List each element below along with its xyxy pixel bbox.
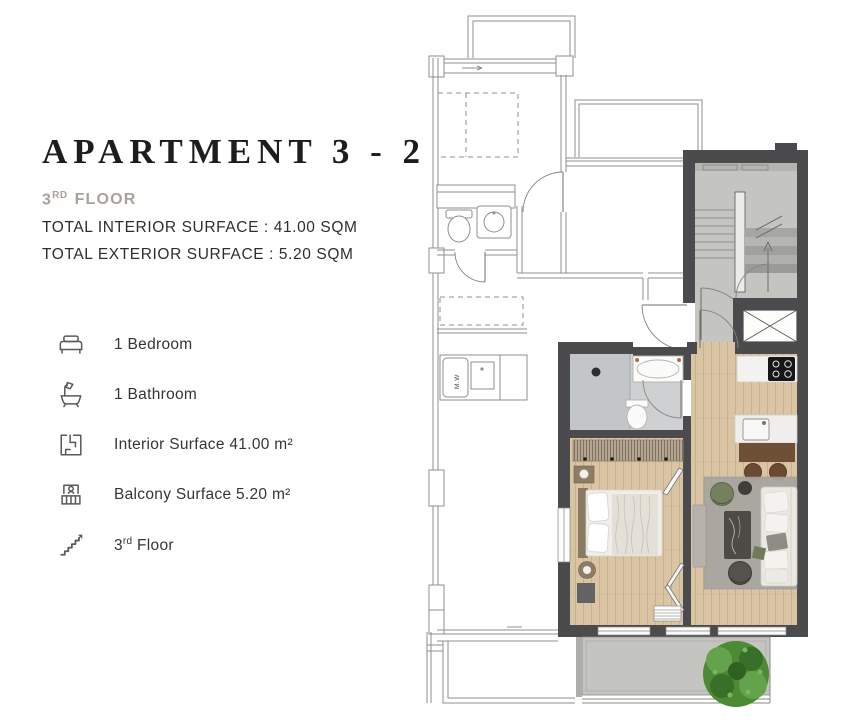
washer-counter: M.W [440,355,527,400]
feature-floor: 3rd Floor [54,530,442,560]
dresser [577,583,595,603]
info-panel: APARTMENT 3 - 2 3RDFLOOR TOTAL INTERIOR … [42,132,442,580]
bedroom-bed [578,488,662,558]
feature-list: 1 Bedroom 1 Bathroom [54,330,442,560]
interior-surface-line: TOTAL INTERIOR SURFACE : 41.00 SQM [42,219,442,237]
page-title: APARTMENT 3 - 2 [42,132,442,172]
armchair-dark [729,562,752,585]
shower-head [592,368,601,377]
bed-icon [54,328,88,362]
feature-bedroom: 1 Bedroom [54,330,442,360]
elevator [733,298,797,342]
kitchen [735,356,797,481]
floor-ordinal-suffix: RD [52,190,67,201]
feature-interior-surface: Interior Surface 41.00 m² [54,430,442,460]
floor-label: 3rd Floor [114,536,174,555]
exterior-surface-line: TOTAL EXTERIOR SURFACE : 5.20 SQM [42,246,442,264]
stairs-icon [54,528,88,562]
living-room [693,477,797,589]
neighbor-bathroom [437,185,515,242]
cooktop [768,357,795,381]
sofa [761,487,797,586]
floor-number: 3 [42,191,52,208]
balcony-icon [54,478,88,512]
balcony [576,637,770,707]
washer-label: M.W [454,374,461,389]
armchair-green [711,483,734,506]
apartment-unit [558,310,808,637]
feature-balcony-surface: Balcony Surface 5.20 m² [54,480,442,510]
floor-subtitle: 3RDFLOOR [42,190,442,209]
kitchen-island [735,415,797,462]
feature-bathroom: 1 Bathroom [54,380,442,410]
floorplan-icon [54,428,88,462]
tree [703,641,769,707]
stair-treads-right [745,228,797,273]
side-table-round [738,481,752,495]
coffee-table [724,511,751,559]
bathtub-icon [54,378,88,412]
floor-word: FLOOR [75,191,137,208]
sideboard [693,505,706,567]
ottoman [752,546,766,560]
